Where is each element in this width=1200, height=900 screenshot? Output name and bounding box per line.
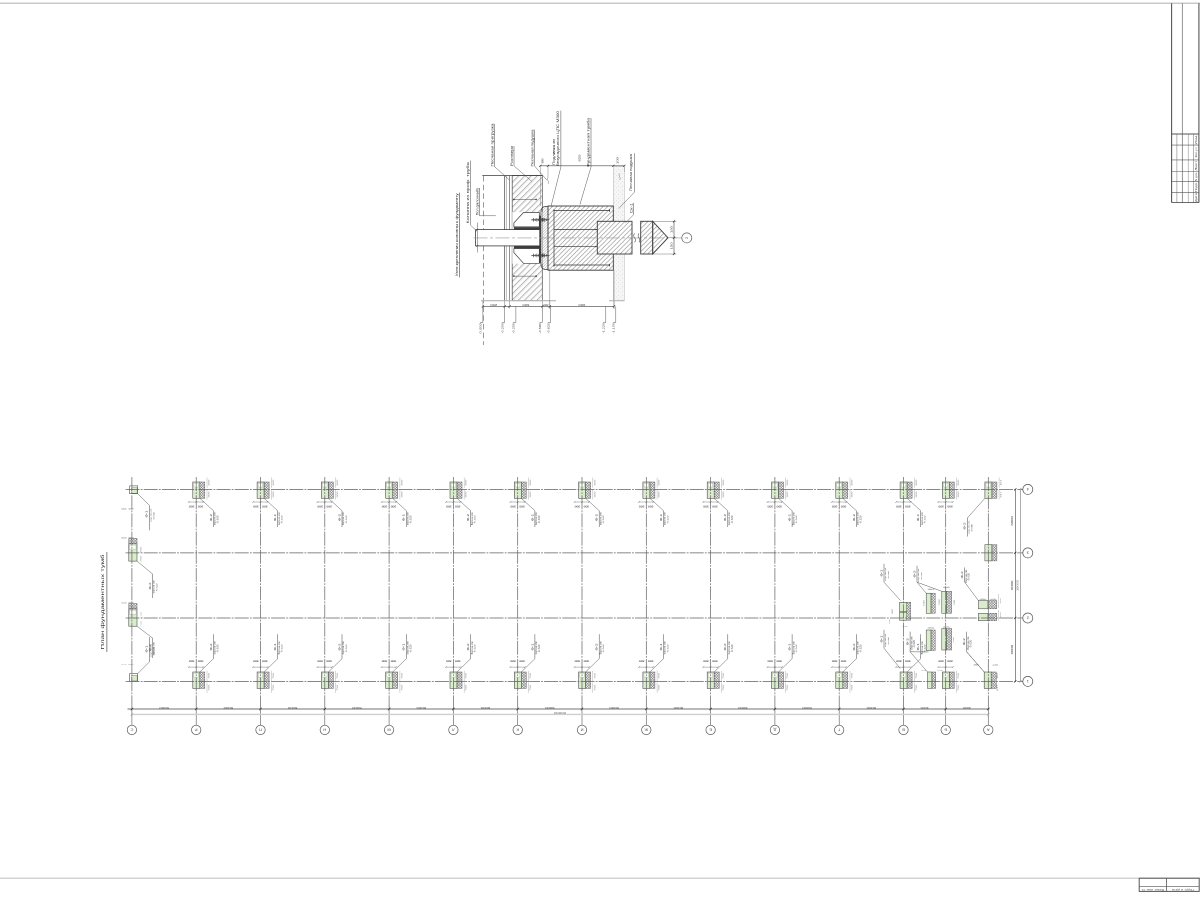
svg-text:6000: 6000 (609, 706, 619, 710)
svg-text:-1.220: -1.220 (601, 322, 605, 333)
svg-text:300: 300 (776, 504, 782, 507)
svg-text:6000: 6000 (223, 706, 233, 710)
svg-text:18000: 18000 (1015, 579, 1019, 590)
svg-text:Ф-2: Ф-2 (595, 513, 599, 521)
svg-text:-0.620: -0.620 (282, 644, 284, 653)
svg-text:Н: Н (323, 727, 326, 732)
svg-text:Верх на отм.: Верх на отм. (343, 640, 345, 654)
svg-text:-0.620: -0.620 (796, 644, 798, 653)
svg-text:И: И (580, 727, 583, 732)
svg-text:6000: 6000 (416, 706, 426, 710)
svg-text:Подп. и дата: Подп. и дата (1171, 888, 1194, 892)
svg-text:300: 300 (518, 504, 524, 507)
svg-text:Взам. инв. N: Взам. инв. N (1142, 888, 1164, 892)
svg-text:300: 300 (381, 504, 387, 507)
svg-text:6000: 6000 (545, 706, 555, 710)
svg-text:Ф-1: Ф-1 (402, 643, 406, 651)
svg-text:300: 300 (317, 659, 323, 662)
svg-text:-0.620: -0.620 (796, 515, 798, 524)
svg-text:М: М (387, 727, 390, 732)
svg-text:Верх на отм.: Верх на отм. (922, 511, 924, 525)
svg-text:Верх на отм.: Верх на отм. (279, 511, 281, 525)
svg-text:Верх на отм.: Верх на отм. (279, 640, 281, 654)
svg-text:-0.620: -0.620 (539, 644, 541, 653)
svg-text:Верх на отм.: Верх на отм. (536, 640, 538, 654)
svg-text:Ф-1: Ф-1 (659, 643, 663, 651)
svg-text:Верх на отм.: Верх на отм. (343, 511, 345, 525)
svg-text:6000: 6000 (802, 706, 812, 710)
svg-text:300: 300 (904, 504, 910, 507)
svg-text:-0.620: -0.620 (153, 511, 155, 520)
svg-text:Ф-1: Ф-1 (879, 569, 883, 577)
svg-text:100: 100 (615, 156, 619, 164)
svg-text:300: 300 (895, 659, 901, 662)
svg-text:Верх на отм.: Верх на отм. (793, 511, 795, 525)
svg-text:-0.620: -0.620 (282, 515, 284, 524)
svg-text:-0.620: -0.620 (603, 515, 605, 524)
svg-text:Подп.: Подп. (1194, 182, 1198, 192)
svg-text:Песчаная подушка: Песчаная подушка (629, 154, 633, 191)
svg-text:Ф-2: Ф-2 (723, 513, 727, 521)
svg-text:300: 300 (840, 659, 846, 662)
svg-text:300: 300 (390, 504, 396, 507)
svg-text:Верх на отм.: Верх на отм. (600, 640, 602, 654)
svg-text:300: 300 (840, 504, 846, 507)
svg-text:Ф-1: Ф-1 (788, 513, 792, 521)
svg-text:150: 150 (669, 225, 673, 233)
svg-text:-0.580: -0.580 (538, 322, 542, 333)
svg-text:Ф-1: Ф-1 (879, 635, 883, 643)
svg-text:300: 300 (574, 659, 580, 662)
svg-text:300: 300 (445, 659, 451, 662)
svg-text:300: 300 (326, 659, 332, 662)
svg-text:Ф-2: Ф-2 (595, 643, 599, 651)
svg-text:300: 300 (776, 659, 782, 662)
svg-text:300: 300 (188, 504, 194, 507)
svg-text:Ф-1: Ф-1 (659, 513, 663, 521)
svg-text:300: 300 (895, 504, 901, 507)
svg-text:80: 80 (541, 158, 545, 164)
svg-text:Л: Л (452, 727, 455, 732)
svg-text:4000: 4000 (920, 706, 928, 710)
svg-text:Верх на отм.: Верх на отм. (966, 569, 968, 583)
svg-text:Верх на отм.: Верх на отм. (600, 511, 602, 525)
svg-text:300: 300 (188, 659, 194, 662)
svg-text:Узел крепления колонны к фунда: Узел крепления колонны к фундаменту (455, 193, 459, 276)
svg-text:Верх на отм.: Верх на отм. (858, 640, 860, 654)
svg-text:-0.620: -0.620 (217, 644, 219, 653)
svg-text:-0.620: -0.620 (475, 515, 477, 524)
svg-text:300: 300 (326, 504, 332, 507)
svg-text:-0.680: -0.680 (888, 636, 890, 645)
svg-text:7500: 7500 (920, 637, 922, 644)
svg-text:Верх на отм.: Верх на отм. (154, 579, 156, 593)
svg-text:-0.620: -0.620 (860, 515, 862, 524)
svg-text:-0.620: -0.620 (346, 515, 348, 524)
svg-text:300: 300 (831, 659, 837, 662)
svg-text:Ф-2: Ф-2 (337, 643, 341, 651)
svg-text:План фундаментных тумб: План фундаментных тумб (100, 554, 105, 650)
svg-text:-0.620: -0.620 (539, 515, 541, 524)
svg-text:300: 300 (518, 659, 524, 662)
svg-text:-0.620: -0.620 (603, 644, 605, 653)
svg-text:Колонна из проф. трубы: Колонна из проф. трубы (466, 161, 470, 224)
svg-text:300: 300 (252, 659, 258, 662)
svg-text:Верх на отм.: Верх на отм. (154, 641, 156, 655)
svg-text:Ф-1: Ф-1 (916, 513, 920, 521)
svg-text:300: 300 (937, 659, 943, 662)
svg-text:безусадочного ЦПС М300: безусадочного ЦПС М300 (556, 111, 560, 166)
svg-text:Верх на отм.: Верх на отм. (969, 520, 971, 534)
svg-text:Д: Д (773, 727, 776, 732)
svg-text:300: 300 (711, 504, 717, 507)
svg-text:4000: 4000 (963, 706, 971, 710)
svg-text:625: 625 (578, 154, 582, 162)
svg-text:-0.680: -0.680 (888, 570, 890, 579)
svg-text:300: 300 (381, 659, 387, 662)
svg-text:Кол.уч: Кол.уч (1194, 147, 1198, 158)
svg-text:300: 300 (574, 504, 580, 507)
svg-text:Верх на отм.: Верх на отм. (911, 636, 913, 650)
svg-text:300: 300 (767, 659, 773, 662)
svg-text:-0.620: -0.620 (546, 322, 550, 333)
svg-text:-0.620: -0.620 (732, 515, 734, 524)
svg-text:Ф-2: Ф-2 (852, 643, 856, 651)
svg-text:Верх на отм.: Верх на отм. (215, 511, 217, 525)
svg-text:Верх на отм.: Верх на отм. (472, 640, 474, 654)
svg-text:Верх на отм.: Верх на отм. (665, 511, 667, 525)
svg-text:П: П (259, 727, 262, 732)
svg-text:300: 300 (711, 659, 717, 662)
svg-text:Верх на отм.: Верх на отм. (885, 633, 887, 647)
svg-text:300: 300 (509, 504, 515, 507)
svg-text:900: 900 (578, 303, 586, 307)
svg-text:С: С (130, 727, 133, 732)
svg-text:300: 300 (767, 504, 773, 507)
svg-text:300: 300 (197, 659, 203, 662)
svg-text:0.000: 0.000 (479, 322, 483, 333)
svg-text:1750: 1750 (927, 587, 934, 589)
svg-text:300: 300 (197, 504, 203, 507)
svg-text:Ф-1: Ф-1 (145, 510, 149, 518)
svg-text:-0.620: -0.620 (410, 515, 412, 524)
svg-text:300: 300 (317, 504, 323, 507)
svg-text:-0.200: -0.200 (500, 322, 504, 333)
svg-text:200: 200 (490, 303, 498, 307)
svg-text:300: 300 (638, 659, 644, 662)
svg-text:-0.620: -0.620 (217, 515, 219, 524)
svg-text:Ф-2: Ф-2 (148, 644, 152, 652)
svg-text:Ф-2: Ф-2 (148, 582, 152, 590)
svg-text:Верх на отм.: Верх на отм. (968, 636, 970, 650)
svg-text:Ростверк: Ростверк (510, 145, 514, 166)
svg-text:6000: 6000 (1010, 644, 1014, 654)
svg-text:6000: 6000 (1010, 516, 1014, 526)
svg-text:6000: 6000 (287, 706, 297, 710)
svg-text:Верх на отм.: Верх на отм. (729, 511, 731, 525)
svg-text:300: 300 (937, 504, 943, 507)
svg-text:-1.100: -1.100 (611, 322, 615, 333)
svg-text:300: 300 (702, 659, 708, 662)
svg-text:300: 300 (904, 659, 910, 662)
svg-text:Ф-2: Ф-2 (912, 570, 916, 578)
svg-text:300: 300 (946, 504, 952, 507)
svg-text:300: 300 (252, 504, 258, 507)
svg-text:6000: 6000 (480, 706, 490, 710)
svg-text:Ф-2: Ф-2 (723, 643, 727, 651)
svg-text:Ф-2: Ф-2 (209, 513, 213, 521)
svg-text:-0.620: -0.620 (969, 572, 971, 581)
svg-text:-0.620: -0.620 (860, 644, 862, 653)
svg-text:-0.620: -0.620 (157, 583, 159, 592)
svg-text:Дата: Дата (1194, 192, 1198, 202)
svg-text:300: 300 (946, 659, 952, 662)
svg-text:-0.620: -0.620 (914, 639, 916, 648)
svg-text:Ск-1: Ск-1 (629, 203, 633, 213)
svg-text:Ф-1: Ф-1 (530, 643, 534, 651)
svg-text:Фундаментная тумба: Фундаментная тумба (587, 118, 591, 167)
svg-text:-0.620: -0.620 (921, 571, 923, 580)
svg-text:Ф-1: Ф-1 (788, 643, 792, 651)
svg-text:В: В (902, 727, 905, 732)
svg-text:Р: Р (195, 727, 198, 732)
svg-text:-0.620: -0.620 (971, 639, 973, 648)
svg-text:7500: 7500 (923, 599, 925, 606)
svg-text:Верх на отм.: Верх на отм. (858, 511, 860, 525)
svg-text:1060: 1060 (927, 626, 934, 628)
svg-text:300: 300 (454, 504, 460, 507)
svg-text:Е: Е (709, 727, 712, 732)
svg-text:300: 300 (702, 504, 708, 507)
svg-text:-0.620: -0.620 (732, 644, 734, 653)
svg-text:-0.680: -0.680 (971, 523, 973, 532)
svg-text:6000: 6000 (866, 706, 876, 710)
svg-text:300: 300 (261, 659, 267, 662)
svg-text:Изм.: Изм. (1194, 134, 1198, 144)
svg-text:600: 600 (522, 303, 530, 307)
svg-text:300: 300 (583, 659, 589, 662)
svg-text:N док.: N док. (1194, 172, 1198, 181)
svg-text:-0.620: -0.620 (668, 515, 670, 524)
svg-text:Ф-1: Ф-1 (402, 513, 406, 521)
svg-text:-0.620: -0.620 (346, 644, 348, 653)
svg-text:Верх на отм.: Верх на отм. (408, 511, 410, 525)
svg-text:Ф-1: Ф-1 (273, 513, 277, 521)
svg-text:Ф-2: Ф-2 (962, 638, 966, 646)
svg-text:А: А (987, 727, 990, 732)
svg-text:Верх на отм.: Верх на отм. (918, 568, 920, 582)
svg-text:Верх на отм.: Верх на отм. (472, 511, 474, 525)
svg-text:Ф-2: Ф-2 (963, 522, 967, 530)
svg-text:Верх на отм.: Верх на отм. (151, 508, 153, 522)
svg-text:Ф-2: Ф-2 (906, 638, 910, 646)
svg-text:150: 150 (669, 242, 673, 250)
svg-text:7500: 7500 (939, 598, 941, 605)
svg-text:Б: Б (944, 727, 947, 732)
svg-text:Ф-2: Ф-2 (209, 643, 213, 651)
svg-text:Пол (уклонный): Пол (уклонный) (475, 188, 479, 215)
svg-text:Верх на отм.: Верх на отм. (729, 640, 731, 654)
svg-text:300: 300 (647, 504, 653, 507)
svg-text:300: 300 (261, 504, 267, 507)
svg-text:-0.620: -0.620 (410, 644, 412, 653)
svg-text:Песчаная пригрузка: Песчаная пригрузка (490, 123, 494, 166)
svg-text:6000: 6000 (159, 706, 169, 710)
svg-text:300: 300 (509, 659, 515, 662)
svg-text:300: 300 (583, 504, 589, 507)
svg-text:Ф-1: Ф-1 (273, 643, 277, 651)
svg-text:Верх на отм.: Верх на отм. (665, 640, 667, 654)
svg-text:300: 300 (445, 504, 451, 507)
svg-text:Ж: Ж (644, 727, 648, 732)
svg-text:Верх на отм.: Верх на отм. (536, 511, 538, 525)
svg-text:300: 300 (638, 504, 644, 507)
svg-text:300: 300 (647, 659, 653, 662)
svg-text:Ф-2: Ф-2 (960, 571, 964, 579)
svg-text:Ф-2: Ф-2 (852, 513, 856, 521)
svg-text:80000: 80000 (554, 711, 566, 715)
svg-text:-0.250: -0.250 (512, 322, 516, 333)
svg-text:Ф-1: Ф-1 (530, 513, 534, 521)
svg-text:300: 300 (390, 659, 396, 662)
svg-text:6000: 6000 (738, 706, 748, 710)
svg-text:Верх на отм.: Верх на отм. (215, 640, 217, 654)
svg-text:Верх на отм.: Верх на отм. (793, 640, 795, 654)
svg-text:Верх на отм.: Верх на отм. (885, 567, 887, 581)
svg-text:-0.620: -0.620 (925, 515, 927, 524)
svg-text:Ф-2: Ф-2 (466, 643, 470, 651)
svg-text:-0.620: -0.620 (668, 644, 670, 653)
svg-text:-0.620: -0.620 (475, 644, 477, 653)
svg-text:300: 300 (454, 659, 460, 662)
svg-text:300: 300 (831, 504, 837, 507)
svg-text:7500: 7500 (953, 636, 955, 643)
svg-text:Ф-2: Ф-2 (466, 513, 470, 521)
svg-text:6000: 6000 (673, 706, 683, 710)
svg-text:Ф-2: Ф-2 (337, 513, 341, 521)
svg-text:Верх на отм.: Верх на отм. (408, 640, 410, 654)
svg-text:Песчаная подушка: Песчаная подушка (530, 129, 534, 166)
svg-text:6000: 6000 (352, 706, 362, 710)
svg-text:Лист: Лист (1194, 159, 1198, 170)
svg-text:6000: 6000 (1010, 580, 1014, 590)
